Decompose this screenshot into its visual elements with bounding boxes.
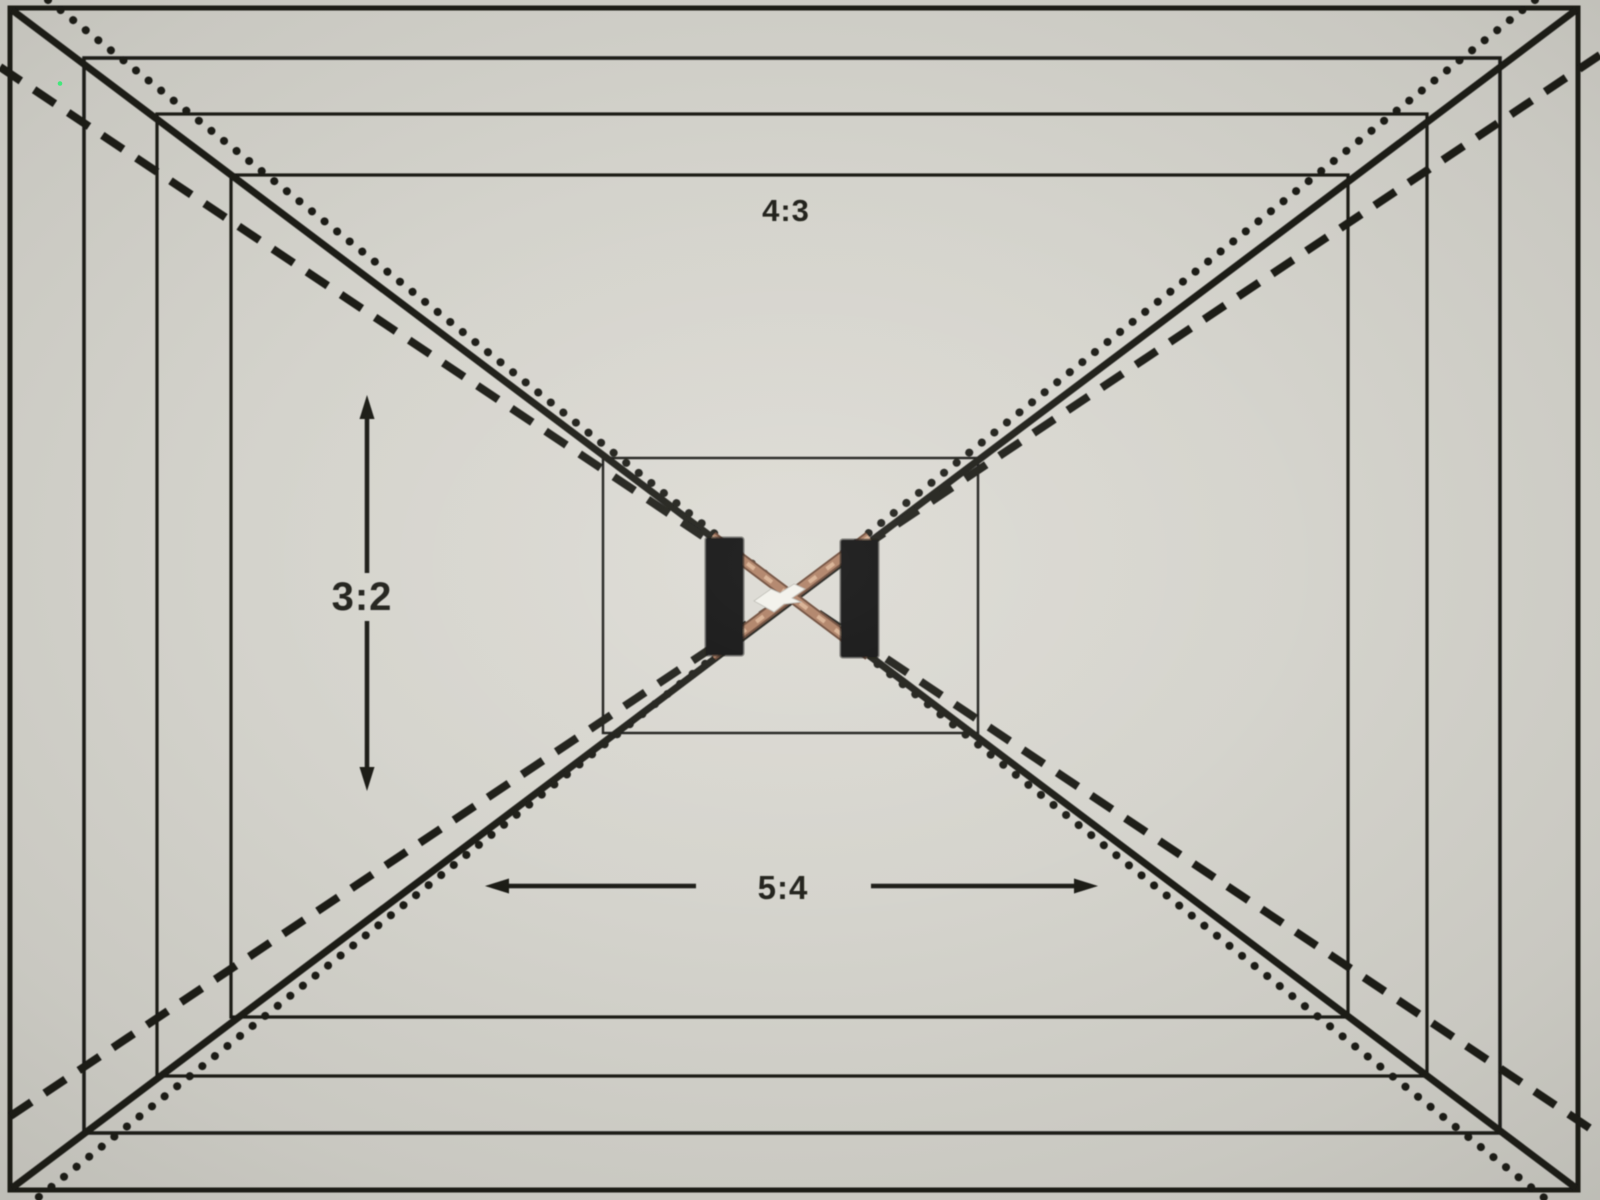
v-arrowhead-down [360, 767, 375, 791]
test-chart-photo: 4:3 3:2 5:4 [0, 0, 1600, 1200]
v-arrowhead-up [360, 395, 375, 419]
h-arrowhead-right [1074, 879, 1098, 894]
aspect-label-5-4: 5:4 [758, 869, 809, 906]
aspect-label-3-2: 3:2 [332, 575, 393, 619]
aspect-label-4-3: 4:3 [762, 193, 810, 228]
test-chart-drawing: 4:3 3:2 5:4 [0, 0, 1600, 1200]
black-bar-right [841, 540, 878, 657]
black-bar-left [706, 538, 743, 655]
h-arrowhead-left [485, 879, 509, 894]
green-pixel-artifact [58, 81, 63, 86]
